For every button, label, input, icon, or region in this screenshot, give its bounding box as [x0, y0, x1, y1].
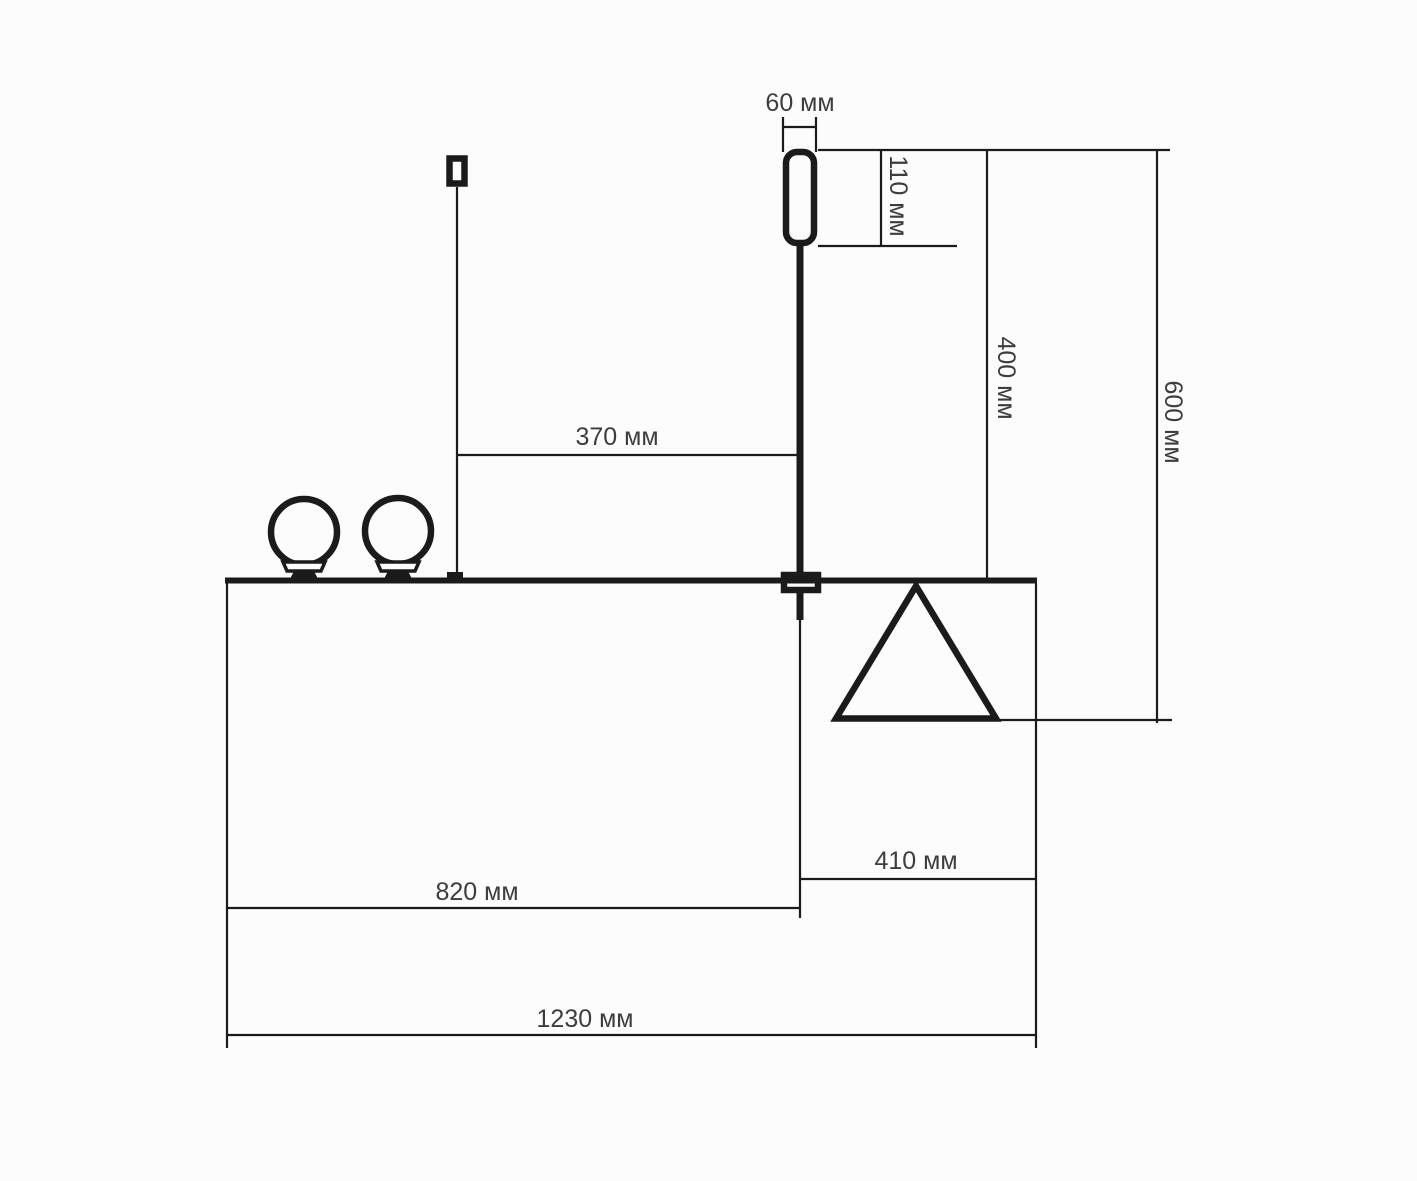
dim820-label: 820 мм [435, 878, 518, 906]
sensor-box [450, 159, 465, 184]
globe-lamp-left [271, 499, 337, 565]
dim410-label: 410 мм [874, 847, 957, 875]
dim60-label: 60 мм [765, 89, 834, 117]
globe-left-collar [283, 562, 325, 571]
globe-lamp-right [365, 498, 431, 564]
cone-shape [836, 586, 996, 719]
technical-drawing-canvas: 60 мм 110 мм 400 мм 600 мм 370 мм [0, 0, 1417, 1181]
dimension-drawing: 60 мм 110 мм 400 мм 600 мм 370 мм [0, 0, 1417, 1181]
capsule-lamp [786, 152, 814, 243]
dim400-label: 400 мм [992, 336, 1020, 419]
dim370-label: 370 мм [575, 423, 658, 451]
globe-right-pedestal [383, 571, 413, 581]
globe-left-pedestal [289, 571, 319, 581]
globe-right-collar [377, 562, 419, 571]
dim110-label: 110 мм [884, 155, 912, 236]
dim600-label: 600 мм [1159, 380, 1187, 463]
dim1230-label: 1230 мм [537, 1005, 634, 1033]
